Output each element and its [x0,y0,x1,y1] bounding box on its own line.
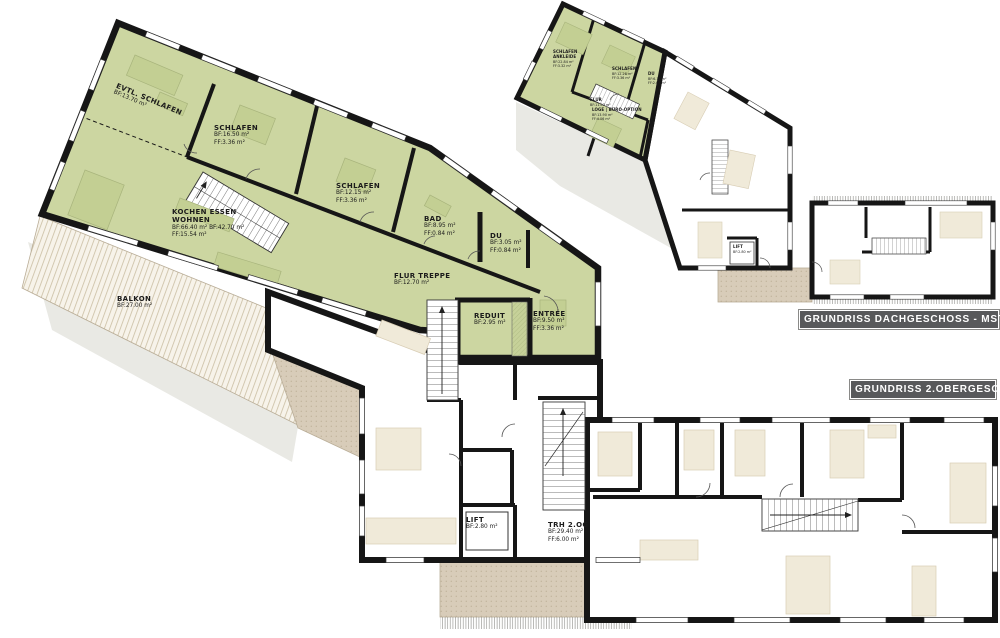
title-badge-dachgeschoss: GRUNDRISS DACHGESCHOSS - MST. 1:200 [799,310,999,329]
dg-stair-right-wing [872,238,926,254]
dg-terrace-area [718,268,812,302]
entree-wardrobe [512,302,527,356]
dg-stair-trh [712,140,728,194]
lift-shaft-2og [466,512,508,550]
stair-right-wing [762,499,858,531]
dg-lift-shaft [730,242,754,264]
stair-trh-2og [543,402,585,510]
stair-lower-apartment [427,300,458,400]
floor-plan-sheet: EVTL. SCHLAFEN BF:13.70 m² SCHLAFEN BF:1… [0,0,1000,638]
title-badge-2-obergeschoss: GRUNDRISS 2.OBERGESCHOSS [850,380,996,399]
